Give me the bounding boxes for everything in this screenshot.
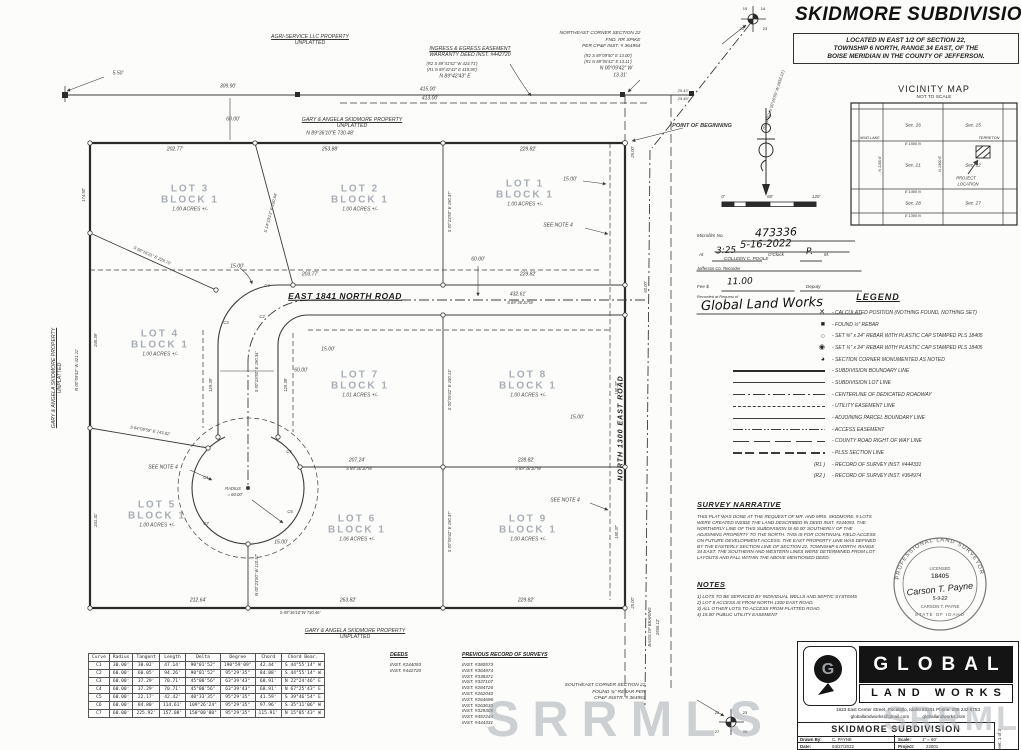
curve-table-row: C3 60.00' 37.29' 70.71' 45°00'56" 63°39'… — [89, 678, 325, 686]
vicinity-map: Sec. 16Sec. 15MUD LAKETERRETONE 1500 NN … — [850, 102, 1018, 226]
curve-degree: 63°39'43" — [220, 678, 255, 686]
dimension-label: S 89°36'10"W — [507, 301, 533, 305]
narrative-line: ON FUTURE DEVELOPMENT ACCESS. THE EAST P… — [697, 538, 897, 544]
curve-delta: 45°00'56" — [186, 686, 221, 694]
curve-delta: 109°26'24" — [186, 702, 221, 710]
legend-item: - SUBDIVISION BOUNDARY LINE — [733, 365, 1021, 377]
curve-table-body: C1 30.00' 30.02' 47.14' 90°01'52" 190°59… — [89, 662, 325, 718]
curve-delta: 90°01'52" — [186, 670, 221, 678]
vicinity-label: Sec. 22 — [965, 163, 981, 168]
lot-label: LOT 1 BLOCK 1 1.00 ACRES +/- — [496, 179, 554, 208]
narrative-heading: SURVEY NARRATIVE — [697, 500, 897, 509]
dimension-label: POINT OF BEGINNING — [672, 124, 732, 130]
legend-symbol: ◉ — [733, 344, 825, 351]
curve-table-row: C5 60.00' 22.17' 42.42' 40°33'35" 95°29'… — [89, 694, 325, 702]
lot-block: BLOCK 1 — [331, 195, 389, 206]
curve-degree: 95°29'35" — [220, 702, 255, 710]
dimension-label: (R1 N 89°42'43" E 419.95') — [427, 68, 477, 72]
dimension-label: NORTH 1300 EAST ROAD — [618, 375, 625, 480]
deed-item: INST. #442720 — [390, 668, 421, 674]
dimension-label: 229.82' — [520, 273, 536, 278]
section-corner-note: NORTHEAST CORNER SECTION 22 FND. RR SPIK… — [560, 31, 641, 51]
scale-label: 0' — [721, 195, 724, 200]
legend-item: - ACCESS EASEMENT — [733, 424, 1021, 436]
dimension-label: 309.90' — [220, 85, 236, 90]
lot-label: LOT 5 BLOCK 1 1.00 ACRES +/- — [128, 500, 186, 529]
curve-length: 70.71' — [159, 686, 185, 694]
dimension-label: N 89°36'10"E 730.48' — [306, 132, 353, 137]
date-label: Date: — [800, 744, 811, 749]
firm-name-top: GLOBAL — [859, 646, 1013, 683]
dimension-label: 241.31' — [94, 513, 98, 527]
dimension-label: (R2 S 89°41'52" W 424.71') — [426, 62, 477, 66]
curve-chord: 42.44' — [255, 662, 281, 670]
dimension-label: 14 — [761, 7, 765, 11]
curve-tangent: 60.05' — [133, 670, 159, 678]
note-item: 4) 15.00' PUBLIC UTILITY EASEMENT — [697, 612, 897, 618]
legend-symbol — [733, 441, 825, 442]
dimension-label: BASIS OF BEARING — [648, 607, 652, 646]
dimension-label: 25.00' — [631, 146, 635, 157]
legend-item-label: - ADJOINING PARCEL BOUNDARY LINE — [832, 415, 925, 421]
oclock-label: O'Clock — [768, 252, 784, 257]
corner-line1: NORTHEAST CORNER SECTION 22 — [560, 31, 641, 38]
lot-block: BLOCK 1 — [499, 381, 557, 392]
dimension-label: 129.39' — [209, 378, 213, 392]
lot-number: LOT 5 — [128, 500, 186, 511]
curve-chord-bearing: S 39°46'54" E — [281, 694, 324, 702]
stamp-sig-date: 5-9-22 — [933, 596, 948, 602]
survey-narrative: SURVEY NARRATIVE THIS PLAT WAS DONE AT T… — [697, 500, 897, 561]
vicinity-grid — [850, 102, 1018, 226]
vicinity-label: PROJECT — [956, 176, 976, 181]
road-edges — [192, 285, 625, 544]
curve-chord-bearing: N 15°05'43" W — [281, 710, 324, 718]
curve-id: C3 — [89, 678, 110, 686]
dimension-label: 22 — [740, 27, 744, 31]
curve-degree: 190°59'09" — [220, 662, 255, 670]
dimension-label: 25.43' — [678, 89, 689, 93]
curve-chord: 97.96' — [255, 702, 281, 710]
narrative-line: ADJOINING PROPERTY TO THE NORTH. THIS IS… — [697, 532, 897, 538]
dimension-label: 15.00' — [563, 178, 576, 183]
scale-label: 60' — [767, 195, 773, 200]
lot-label: LOT 3 BLOCK 1 1.00 ACRES +/- — [161, 184, 219, 213]
adjoining-property-label: GARY & ANGELA SKIDMORE PROPERTY UNPLATTE… — [51, 328, 63, 428]
legend-symbol — [733, 394, 825, 395]
legend-symbol: ■ — [733, 321, 825, 328]
curve-length: 42.42' — [159, 694, 185, 702]
firm-logo-icon: G — [803, 646, 857, 706]
curve-table-header: Chord — [255, 654, 281, 662]
legend-ref: (R2 ) — [814, 473, 825, 479]
notes-heading: NOTES — [697, 580, 897, 589]
lot-block: BLOCK 1 — [128, 511, 186, 522]
legend-item: ◕ - SECTION CORNER MONUMENTED AS NOTED — [733, 354, 1021, 366]
lot-acreage: 1.00 ACRES +/- — [131, 352, 189, 358]
scale-bar — [722, 202, 816, 207]
legend-item-label: - FOUND ½" REBAR — [832, 322, 879, 328]
legend-item-label: - CENTERLINE OF DEDICATED ROADWAY — [832, 392, 932, 398]
legend-marker-icon: ○ — [821, 333, 825, 340]
lot-acreage: 1.00 ACRES +/- — [128, 523, 186, 529]
deed-item: INST. #244093 — [390, 662, 421, 668]
dimension-label: SEE NOTE 4 — [550, 499, 579, 504]
curve-id: C1 — [89, 662, 110, 670]
dimension-label: 174.50' — [82, 188, 86, 202]
dimension-label: 253.88' — [322, 148, 338, 153]
vicinity-label: N 1300 E — [938, 156, 942, 172]
sheet-title: SKIDMORE SUBDIVISION — [795, 4, 1017, 26]
dimension-label: N 00°09'42" W 421.11' — [75, 349, 79, 391]
adjoining-property-label: GARY & ANGELA SKIDMORE PROPERTY UNPLATTE… — [305, 628, 405, 640]
stamp-state: STATE OF IDAHO — [915, 612, 965, 617]
dimension-label: S 89°36'10"W — [346, 467, 372, 471]
legend-item: ■ - FOUND ½" REBAR — [733, 319, 1021, 331]
legend-symbol: (R1 ) — [733, 462, 825, 468]
plat-sheet: PROFESSIONAL LAND SURVEYOR LICENSED 1840… — [0, 0, 1021, 750]
vicinity-label: E 1300 N — [905, 214, 921, 218]
legend-symbol — [733, 382, 825, 383]
project-label: Project: — [898, 744, 914, 749]
legend-item: (R1 ) - RECORD OF SURVEY INST. #444331 — [733, 459, 1021, 471]
curve-chord-bearing: N 67°25'43" E — [281, 686, 324, 694]
legend-item-label: - PLSS SECTION LINE — [832, 450, 884, 456]
legend-item: (R2 ) - RECORD OF SURVEY INST. #364974 — [733, 471, 1021, 483]
dimension-label: C2 — [259, 315, 264, 319]
dimension-label: C7 — [203, 522, 208, 526]
curve-length: 94.26' — [159, 670, 185, 678]
vicinity-label: E 1400 N — [905, 190, 921, 194]
dimension-label: S 00°23'50" E 190.37' — [448, 192, 452, 233]
legend-item: ✕ - CALCULATED POSITION (NOTHING FOUND, … — [733, 307, 1021, 319]
vicinity-label: Sec. 28 — [905, 201, 921, 206]
curve-chord: 41.59' — [255, 694, 281, 702]
curve-id: C4 — [89, 686, 110, 694]
curve-table-header-row: CurveRadiusTangentLengthDeltaDegreeChord… — [89, 654, 325, 662]
lot-block: BLOCK 1 — [331, 381, 389, 392]
dimension-label: 60.00' — [294, 369, 307, 374]
curve-table: CurveRadiusTangentLengthDeltaDegreeChord… — [88, 653, 325, 718]
curve-chord-bearing: S 44°55'14" W — [281, 662, 324, 670]
dimension-label: 25.00' — [631, 597, 635, 608]
signature-line — [715, 252, 850, 253]
project-value: 22001 — [926, 744, 938, 749]
legend-item: - SUBDIVISION LOT LINE — [733, 377, 1021, 389]
legend-line-sample — [733, 452, 825, 453]
lot-number: LOT 4 — [131, 329, 189, 340]
signature-line — [697, 271, 862, 272]
curve-degree: 95°29'35" — [220, 710, 255, 718]
legend-symbol: ○ — [733, 333, 825, 340]
curve-degree: 63°39'43" — [220, 686, 255, 694]
dimension-label: 207.24' — [349, 459, 365, 464]
subtitle-line1: LOCATED IN EAST 1/2 OF SECTION 22, — [794, 37, 1018, 45]
date-value: 04/27/2022 — [832, 744, 854, 749]
legend-item: - ADJOINING PARCEL BOUNDARY LINE — [733, 412, 1021, 424]
lot-label: LOT 9 BLOCK 1 1.00 ACRES +/- — [499, 514, 557, 543]
project-location-marker — [968, 146, 990, 174]
curve-tangent: 37.29' — [133, 678, 159, 686]
dimension-label: C5 — [286, 450, 291, 454]
curve-length: 114.61' — [159, 702, 185, 710]
curve-radius: 60.00' — [109, 694, 133, 702]
property-status: UNPLATTED — [271, 40, 349, 46]
curve-chord: 68.91' — [255, 686, 281, 694]
legend-symbol — [733, 429, 825, 430]
curve-tangent: 37.29' — [133, 686, 159, 694]
legend-item: - PLSS SECTION LINE — [733, 447, 1021, 459]
dimension-label: S 00°09'42" E 190.13' — [448, 370, 452, 411]
curve-degree: 95°29'35" — [220, 694, 255, 702]
legend-item-label: - SUBDIVISION BOUNDARY LINE — [832, 368, 909, 374]
dimension-label: 60.00' — [226, 118, 239, 123]
title-block-divider — [798, 742, 994, 743]
legend-item-label: - SET ¾" x 24" REBAR WITH PLASTIC CAP ST… — [832, 345, 983, 351]
subtitle-line3: BOISE MERIDIAN IN THE COUNTY OF JEFFERSO… — [794, 53, 1018, 61]
curve-chord: 68.91' — [255, 678, 281, 686]
dimension-label: 15.00' — [570, 416, 583, 421]
legend-heading: LEGEND — [733, 292, 1021, 302]
lot-block: BLOCK 1 — [499, 525, 557, 536]
legend-line-sample — [733, 394, 825, 395]
lot-label: LOT 6 BLOCK 1 1.06 ACRES +/- — [328, 514, 386, 543]
signature-line — [712, 261, 762, 262]
curve-delta: 150°00'00" — [186, 710, 221, 718]
lot-block: BLOCK 1 — [328, 525, 386, 536]
dimension-label: N 00°09'42" W — [600, 67, 633, 72]
lot-block: BLOCK 1 — [131, 340, 189, 351]
corner-line1: SOUTHEAST CORNER SECTION 22 — [565, 683, 646, 690]
dimension-label: 245.39' — [94, 333, 98, 347]
dimension-label: N 89°42'43" E — [439, 75, 470, 80]
fee-label: Fee $ — [697, 284, 709, 289]
curve-table-header: Length — [159, 654, 185, 662]
dimension-label: C1 — [203, 476, 208, 480]
curve-delta: 40°33'35" — [186, 694, 221, 702]
deeds-list: DEEDS INST. #244093INST. #442720 — [390, 652, 421, 674]
stamp-licensed: LICENSED — [930, 566, 951, 571]
watermark: SRRMLS — [884, 700, 1021, 739]
curve-id: C7 — [89, 710, 110, 718]
curve-radius: 60.00' — [109, 670, 133, 678]
dimension-label: 25.49' — [678, 97, 689, 101]
signature-line — [800, 261, 822, 262]
legend-symbol — [733, 452, 825, 453]
legend-item-label: - CALCULATED POSITION (NOTHING FOUND, NO… — [832, 310, 977, 316]
dimension-label: 15.00' — [321, 348, 334, 353]
dimension-label: 190.37' — [615, 525, 619, 539]
curve-tangent: 22.17' — [133, 694, 159, 702]
vicinity-map-scale-note: NOT TO SCALE — [850, 95, 1018, 100]
curve-radius: 60.00' — [109, 686, 133, 694]
surveys-heading: PREVIOUS RECORD OF SURVEYS — [462, 652, 548, 658]
vicinity-label: Sec. 15 — [965, 123, 981, 128]
curve-chord-bearing: N 22°24'46" E — [281, 678, 324, 686]
deputy-label: Deputy — [806, 284, 821, 289]
legend-line-sample — [733, 382, 825, 383]
dimension-label: 415.00' — [420, 88, 436, 93]
curve-length: 70.71' — [159, 678, 185, 686]
dimension-label: N 00°23'50" W 110.57' — [255, 554, 259, 596]
legend-line-sample — [733, 370, 825, 372]
vicinity-label: Sec. 27 — [965, 201, 981, 206]
lot-number: LOT 2 — [331, 184, 389, 195]
legend-item: ◉ - SET ¾" x 24" REBAR WITH PLASTIC CAP … — [733, 342, 1021, 354]
lot-number: LOT 1 — [496, 179, 554, 190]
legend-line-sample — [733, 418, 825, 419]
lot-acreage: 1.00 ACRES +/- — [161, 207, 219, 213]
property-status: UNPLATTED — [57, 328, 63, 428]
dimension-label: RADIUS — [225, 487, 241, 491]
narrative-line: LAYOUTS AND FALL WITHIN THE ABOVE MENTIO… — [697, 555, 897, 561]
legend-item: - CENTERLINE OF DEDICATED ROADWAY — [733, 389, 1021, 401]
vicinity-label: E 1500 N — [905, 142, 921, 146]
vicinity-label: Sec. 21 — [905, 163, 921, 168]
lot-label: LOT 7 BLOCK 1 1.01 ACRES +/- — [331, 370, 389, 399]
dimension-label: C3 — [223, 321, 228, 325]
legend-marker-icon: ✕ — [819, 309, 825, 316]
stamp-signature: Carson T. Payne — [906, 581, 973, 598]
legend-symbol: (R2 ) — [733, 473, 825, 479]
dimension-label: 15.00' — [274, 541, 287, 546]
subtitle-line2: TOWNSHIP 6 NORTH, RANGE 34 EAST, OF THE — [794, 45, 1018, 53]
lot-number: LOT 9 — [499, 514, 557, 525]
curve-table-row: C4 60.00' 37.29' 70.71' 45°00'56" 63°39'… — [89, 686, 325, 694]
legend-ref: (R1 ) — [814, 462, 825, 468]
sheet-subtitle: LOCATED IN EAST 1/2 OF SECTION 22, TOWNS… — [793, 33, 1019, 64]
microfilm-label: Microfilm No. — [697, 233, 724, 238]
corner-line3: PER CP&F INST. # 364954 — [560, 44, 641, 51]
curve-tangent: 84.80' — [133, 702, 159, 710]
dimension-label: 60.00' — [644, 281, 648, 292]
lot-acreage: 1.00 ACRES +/- — [496, 202, 554, 208]
dimension-label: 229.82' — [520, 148, 536, 153]
legend-item-label: - SECTION CORNER MONUMENTED AS NOTED — [832, 357, 945, 363]
lot-number: LOT 6 — [328, 514, 386, 525]
dimension-label: 60.00' — [471, 258, 484, 263]
curve-table-row: C2 60.00' 60.05' 94.26' 90°01'52" 95°29'… — [89, 670, 325, 678]
vicinity-label: MUD LAKE — [860, 136, 879, 140]
curve-radius: 30.00' — [109, 662, 133, 670]
curve-chord: 115.91' — [255, 710, 281, 718]
legend-symbol: ✕ — [733, 309, 825, 316]
lot-acreage: 1.06 ACRES +/- — [328, 537, 386, 543]
curve-delta: 45°00'56" — [186, 678, 221, 686]
dimension-label: (R1 N 89°05'42" E 13.11') — [584, 60, 632, 64]
property-status: WARRANTY DEED INST. #442720 — [429, 52, 510, 58]
legend-line-sample — [733, 406, 825, 407]
lot-block: BLOCK 1 — [161, 195, 219, 206]
dimension-label: 5.50' — [113, 72, 124, 77]
curve-id: C6 — [89, 702, 110, 710]
curve-tangent: 225.92' — [133, 710, 159, 718]
svg-text:G: G — [822, 661, 834, 678]
dimension-label: 129.39' — [284, 378, 288, 392]
lot-label: LOT 8 BLOCK 1 1.00 ACRES +/- — [499, 370, 557, 399]
curve-table-header: Delta — [186, 654, 221, 662]
dimension-label: (R2 S 89°09'50" E 13.00') — [584, 54, 632, 58]
stamp-name: CARSON T. PAYNE — [921, 604, 960, 609]
dimension-label: 2656.12' — [656, 619, 660, 635]
curve-chord-bearing: S 44°55'14" W — [281, 670, 324, 678]
curve-delta: 90°01'52" — [186, 662, 221, 670]
dimension-label: = 60.00' — [228, 493, 243, 497]
dimension-label: 23 — [763, 27, 767, 31]
curve-table-row: C7 60.00' 225.92' 157.08' 150°00'00" 95°… — [89, 710, 325, 718]
curve-radius: 60.00' — [109, 678, 133, 686]
dimension-label: 13.31' — [613, 74, 626, 79]
legend-symbol — [733, 370, 825, 372]
legend: LEGEND ✕ - CALCULATED POSITION (NOTHING … — [733, 292, 1021, 482]
curve-table-header: Curve — [89, 654, 110, 662]
lot-number: LOT 8 — [499, 370, 557, 381]
legend-item-label: - RECORD OF SURVEY INST. #444331 — [832, 462, 921, 468]
dimension-label: C4 — [264, 284, 269, 288]
dimension-lines — [190, 25, 746, 716]
dimension-label: 228.82' — [518, 459, 534, 464]
property-status: UNPLATTED — [302, 123, 402, 129]
dimension-label: 15 — [743, 7, 747, 11]
adjoining-property-label: AGRI-SERVICE LLC PROPERTY UNPLATTED — [271, 34, 349, 46]
curve-table-header: Chord Bear. — [281, 654, 324, 662]
adjoining-property-label: GARY & ANGELA SKIDMORE PROPERTY UNPLATTE… — [302, 117, 402, 129]
dimension-label: SEE NOTE 4 — [148, 466, 177, 471]
vicinity-map-heading: VICINITY MAP — [850, 84, 1018, 94]
dimension-label: 202.77' — [167, 148, 183, 153]
fee-amount: 11.00 — [727, 277, 753, 288]
curve-length: 47.14' — [159, 662, 185, 670]
dimension-label: S 89°36'10"W 730.46' — [280, 611, 321, 615]
surveyor-stamp: PROFESSIONAL LAND SURVEYOR LICENSED 1840… — [894, 537, 986, 630]
curve-table-header: Radius — [109, 654, 133, 662]
legend-item: ○ - SET ⅝" x 24" REBAR WITH PLASTIC CAP … — [733, 330, 1021, 342]
legend-marker-icon: ◕ — [821, 356, 825, 363]
dimension-label: SEE NOTE 4 — [543, 224, 572, 229]
signature-line — [745, 241, 855, 242]
legend-item-label: - RECORD OF SURVEY INST. #364974 — [832, 473, 921, 479]
notes: NOTES 1) LOTS TO BE SERVICED BY INDIVIDU… — [697, 580, 897, 618]
curve-table-header: Tangent — [133, 654, 159, 662]
lot-number: LOT 3 — [161, 184, 219, 195]
deeds-heading: DEEDS — [390, 652, 421, 658]
adjoining-property-label: INGRESS & EGRESS EASEMENT WARRANTY DEED … — [429, 46, 510, 58]
curve-table-row: C1 30.00' 30.02' 47.14' 90°01'52" 190°59… — [89, 662, 325, 670]
m-label: M. — [824, 252, 829, 257]
dimension-label: 263.82' — [340, 599, 356, 604]
legend-symbol — [733, 406, 825, 407]
lot-acreage: 1.00 ACRES +/- — [331, 207, 389, 213]
curve-table-header: Degree — [220, 654, 255, 662]
legend-symbol: ◕ — [733, 356, 825, 363]
legend-symbol — [733, 418, 825, 419]
curve-tangent: 30.02' — [133, 662, 159, 670]
curve-chord-bearing: S 35°11'06" W — [281, 702, 324, 710]
curve-id: C5 — [89, 694, 110, 702]
dimension-label: EAST 1841 NORTH ROAD — [288, 292, 402, 301]
lot-number: LOT 7 — [331, 370, 389, 381]
curve-table-row: C6 60.00' 84.80' 114.61' 109°26'24" 95°2… — [89, 702, 325, 710]
curve-radius: 60.00' — [109, 710, 133, 718]
legend-item: - COUNTY ROAD RIGHT OF WAY LINE — [733, 436, 1021, 448]
vicinity-label: Sec. 16 — [905, 123, 921, 128]
lot-acreage: 1.00 ACRES +/- — [499, 537, 557, 543]
legend-item-label: - UTILITY EASEMENT LINE — [832, 403, 895, 409]
dimension-label: 15.00' — [230, 265, 243, 270]
lot-label: LOT 2 BLOCK 1 1.00 ACRES +/- — [331, 184, 389, 213]
legend-item: - UTILITY EASEMENT LINE — [733, 401, 1021, 413]
legend-item-label: - ACCESS EASEMENT — [832, 427, 884, 433]
